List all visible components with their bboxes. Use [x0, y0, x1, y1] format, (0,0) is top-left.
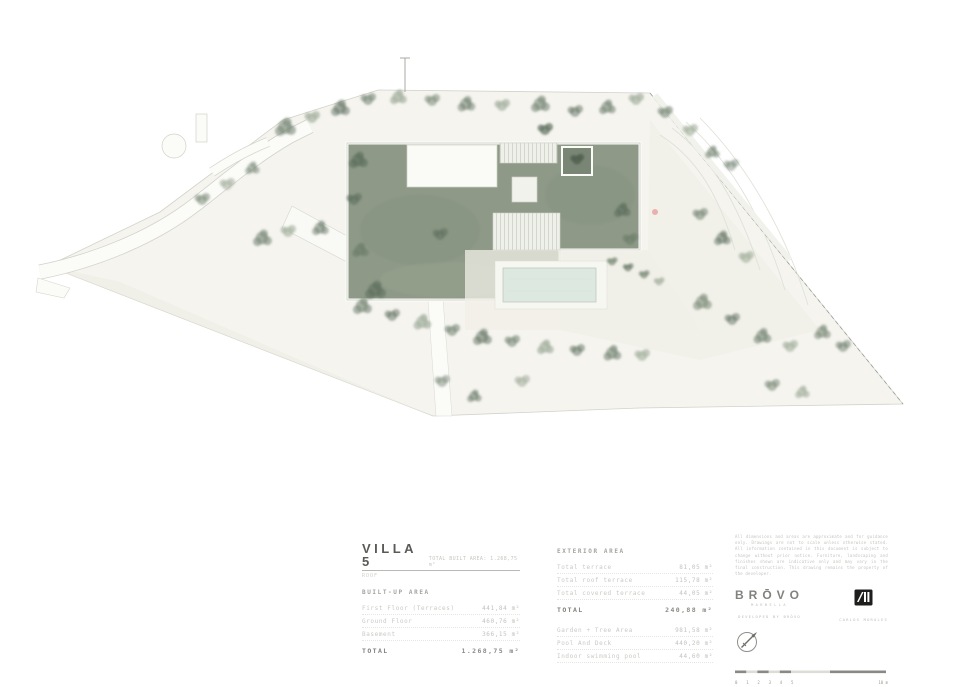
row-value: 44,05 m² — [679, 590, 713, 597]
row-label: Basement — [362, 631, 396, 638]
table-row: Total terrace 81,05 m² — [557, 561, 713, 574]
builtup-panel: VILLA 5 TOTAL BUILT AREA: 1.268,75 m² RO… — [362, 542, 520, 657]
scale-tick: 1 — [746, 680, 757, 685]
row-label: Ground Floor — [362, 618, 413, 625]
pergola-deck-main — [493, 213, 560, 250]
scale-tick: 0 — [735, 680, 746, 685]
row-value: 115,78 m² — [675, 577, 713, 584]
table-row: Pool And Deck 440,20 m² — [557, 637, 713, 650]
row-label: Garden + Tree Area — [557, 627, 633, 634]
exterior-heading: EXTERIOR AREA — [557, 548, 713, 555]
scale-tick: 2 — [757, 680, 768, 685]
table-row: Total roof terrace 115,78 m² — [557, 574, 713, 587]
row-label: Total roof terrace — [557, 577, 633, 584]
roof-courtyard — [407, 145, 497, 187]
logos-row: BRŌVO MARBELLA DEVELOPED BY BRŌVO CARLOS… — [735, 589, 888, 622]
architect-logo-icon — [854, 589, 873, 610]
row-label: Pool And Deck — [557, 640, 612, 647]
brand-caption: DEVELOPED BY BRŌVO — [735, 614, 804, 619]
total-value: 240,88 m² — [665, 606, 713, 614]
builtup-total-row: TOTAL 1.268,75 m² — [362, 641, 520, 657]
row-value: 366,15 m² — [482, 631, 520, 638]
north-arrow-icon — [735, 628, 888, 658]
villa-title: VILLA 5 — [362, 542, 429, 568]
drawing-sheet: VILLA 5 TOTAL BUILT AREA: 1.268,75 m² RO… — [0, 0, 977, 687]
row-label: Total terrace — [557, 564, 612, 571]
exterior-total-row: TOTAL 240,88 m² — [557, 600, 713, 616]
villa-subtitle: ROOF — [362, 573, 520, 579]
brand-sub: MARBELLA — [735, 603, 804, 607]
site-plan — [0, 0, 977, 525]
pergola-deck-top — [500, 143, 557, 163]
architect-caption: CARLOS MORALES — [839, 617, 888, 622]
villa-header: VILLA 5 TOTAL BUILT AREA: 1.268,75 m² — [362, 542, 520, 571]
brovo-logo: BRŌVO — [735, 589, 804, 601]
row-value: 460,76 m² — [482, 618, 520, 625]
row-value: 81,05 m² — [679, 564, 713, 571]
total-label: TOTAL — [362, 647, 389, 655]
feature-marker — [652, 209, 658, 215]
row-label: Total covered terrace — [557, 590, 645, 597]
row-label: First Floor (Terraces) — [362, 605, 455, 612]
builtup-heading: BUILT-UP AREA — [362, 589, 520, 596]
scale-end-label: 10 m — [878, 680, 888, 685]
total-value: 1.268,75 m² — [462, 647, 520, 655]
row-label: Indoor swimming pool — [557, 653, 641, 660]
villa-header-note: TOTAL BUILT AREA: 1.268,75 m² — [429, 556, 520, 568]
signature-panel: All dimensions and areas are approximate… — [735, 534, 888, 685]
architect-block: CARLOS MORALES — [839, 589, 888, 622]
survey-mark — [400, 58, 410, 92]
scale-tick: 5 — [791, 680, 802, 685]
disclaimer-notes: All dimensions and areas are approximate… — [735, 534, 888, 577]
scale-tick: 4 — [780, 680, 791, 685]
exterior-panel: EXTERIOR AREA Total terrace 81,05 m² Tot… — [557, 542, 713, 663]
table-row: Indoor swimming pool 44,60 m² — [557, 650, 713, 663]
scale-labels: 0 1 2 3 4 5 10 m — [735, 680, 888, 685]
total-label: TOTAL — [557, 606, 584, 614]
row-value: 441,84 m² — [482, 605, 520, 612]
row-value: 981,58 m² — [675, 627, 713, 634]
table-row: Basement 366,15 m² — [362, 628, 520, 641]
table-row: Ground Floor 460,76 m² — [362, 615, 520, 628]
row-value: 440,20 m² — [675, 640, 713, 647]
table-row: First Floor (Terraces) 441,84 m² — [362, 602, 520, 615]
developer-brand: BRŌVO MARBELLA DEVELOPED BY BRŌVO — [735, 589, 804, 619]
scale-tick: 3 — [769, 680, 780, 685]
swimming-pool — [503, 268, 596, 302]
table-row: Total covered terrace 44,05 m² — [557, 587, 713, 600]
scale-bar: 0 1 2 3 4 5 10 m — [735, 660, 888, 685]
table-row: Garden + Tree Area 981,58 m² — [557, 624, 713, 637]
roof-skylight — [512, 177, 537, 202]
row-value: 44,60 m² — [679, 653, 713, 660]
